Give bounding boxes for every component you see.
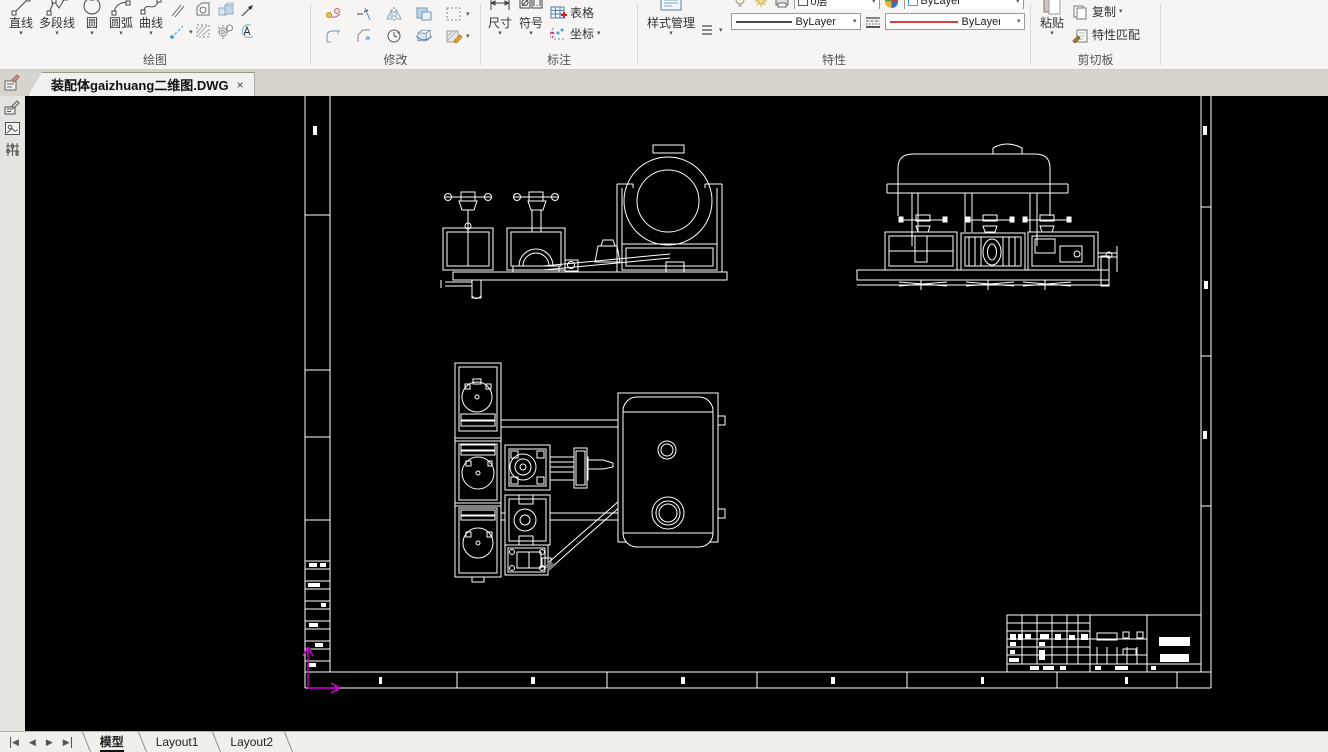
region-icon[interactable] xyxy=(195,2,213,18)
hatch-icon[interactable] xyxy=(195,23,213,39)
current-color-swatch xyxy=(908,0,918,6)
chevron-down-icon[interactable]: ▾ xyxy=(19,30,23,37)
annotate-group-label: 标注 xyxy=(481,51,637,68)
coordinate-button[interactable]: 坐标 ▾ xyxy=(549,25,601,42)
spline-tool-button[interactable]: 曲线 ▾ xyxy=(136,0,166,52)
ribbon-group-properties: 样式管理 ▾ ▾ xyxy=(638,0,1030,70)
polyline-tool-label: 多段线 xyxy=(39,16,75,30)
symbol-button[interactable]: 符号 ▾ xyxy=(515,0,547,52)
tab-layout2[interactable]: Layout2 xyxy=(214,732,289,752)
arc-tool-button[interactable]: 圆弧 ▾ xyxy=(106,0,136,52)
layout-tab-bar: ◀ ◀ ▶ ▶ 模型 Layout1 Layout2 xyxy=(0,731,1328,752)
frame-zone-ticks xyxy=(308,126,1208,684)
chevron-down-icon[interactable]: ▾ xyxy=(466,11,470,18)
ribbon-group-draw: 直线 ▾ 多段线 ▾ 圆 xyxy=(0,0,310,70)
layer-color-swatch xyxy=(798,0,808,6)
first-tab-button[interactable]: ◀ xyxy=(10,737,19,748)
parallel-lines-icon[interactable] xyxy=(168,2,186,18)
chevron-down-icon[interactable]: ▾ xyxy=(669,30,673,37)
mirror-icon[interactable] xyxy=(385,6,403,22)
draw-group-label: 绘图 xyxy=(0,51,310,68)
text-style-icon[interactable] xyxy=(239,23,257,39)
trim-icon[interactable] xyxy=(355,6,373,22)
document-tab[interactable]: 装配体gaizhuang二维图.DWG × xyxy=(28,72,255,96)
polyline-icon xyxy=(46,0,68,16)
offset-icon[interactable] xyxy=(325,6,343,22)
layout-tabs: 模型 Layout1 Layout2 xyxy=(84,732,289,752)
dimension-button[interactable]: 尺寸 ▾ xyxy=(485,0,515,52)
line-icon xyxy=(10,0,32,16)
rotate-icon[interactable] xyxy=(385,28,403,44)
layout1-tab-label: Layout1 xyxy=(156,735,199,749)
leader-arrow-icon[interactable] xyxy=(239,2,257,18)
layer-on-bulb-icon[interactable] xyxy=(731,0,749,9)
ucs-axis-icon xyxy=(303,647,340,693)
sheet-border-frame xyxy=(305,96,1211,688)
coordinate-label: 坐标 xyxy=(570,25,594,42)
side-tool-strip xyxy=(0,96,25,731)
ribbon-toolbar: 直线 ▾ 多段线 ▾ 圆 xyxy=(0,0,1328,70)
construction-line-icon[interactable] xyxy=(168,24,186,40)
linetype-dropdown[interactable]: ByLayer ▾ xyxy=(885,13,1025,30)
chevron-down-icon[interactable]: ▾ xyxy=(55,30,59,37)
chamfer-icon[interactable] xyxy=(355,28,373,44)
group-separator xyxy=(1160,4,1161,65)
line-tool-label: 直线 xyxy=(9,16,33,30)
union-icon[interactable] xyxy=(415,6,433,22)
cad-drawing xyxy=(25,96,1328,731)
copy-button[interactable]: 复制 ▾ xyxy=(1071,3,1140,20)
clipboard-group-label: 剪切板 xyxy=(1031,51,1160,68)
prev-tab-button[interactable]: ◀ xyxy=(29,737,36,748)
paste-label: 粘贴 xyxy=(1040,16,1064,30)
chevron-down-icon[interactable]: ▾ xyxy=(719,27,723,34)
model-tab-label: 模型 xyxy=(100,733,124,752)
front-view-drawing xyxy=(441,145,727,299)
style-manager-label: 样式管理 xyxy=(647,16,695,30)
current-color-value: ByLayer xyxy=(921,0,961,7)
ribbon-group-clipboard: 粘贴 ▾ 复制 ▾ 特性匹配 xyxy=(1031,0,1160,70)
view-orbit-icon[interactable] xyxy=(415,28,433,44)
circle-icon xyxy=(81,0,103,16)
linetype-value: ByLayer xyxy=(962,16,1000,28)
close-icon[interactable]: × xyxy=(237,78,244,92)
chevron-down-icon[interactable]: ▾ xyxy=(498,30,502,37)
chevron-down-icon[interactable]: ▾ xyxy=(90,30,94,37)
paste-icon xyxy=(1041,0,1063,16)
chevron-down-icon[interactable]: ▾ xyxy=(149,30,153,37)
arc-icon xyxy=(110,0,132,16)
image-tool-icon[interactable] xyxy=(4,120,21,137)
chevron-down-icon[interactable]: ▾ xyxy=(597,30,601,37)
table-label: 表格 xyxy=(570,4,594,21)
side-view-drawing xyxy=(857,144,1117,290)
line-tool-button[interactable]: 直线 ▾ xyxy=(6,0,36,52)
side-view-handwheels xyxy=(899,215,1071,232)
properties-group-label: 特性 xyxy=(638,51,1030,68)
document-tab-bar: 装配体gaizhuang二维图.DWG × xyxy=(0,70,1328,96)
table-icon xyxy=(549,5,567,21)
match-properties-button[interactable]: 特性匹配 xyxy=(1071,26,1140,43)
chevron-down-icon[interactable]: ▾ xyxy=(189,29,193,36)
chevron-down-icon[interactable]: ▾ xyxy=(1050,30,1054,37)
layer-plot-printer-icon[interactable] xyxy=(773,0,791,9)
fillet-icon[interactable] xyxy=(325,28,343,44)
paste-button[interactable]: 粘贴 ▾ xyxy=(1037,0,1067,52)
document-switch-icon[interactable] xyxy=(3,74,21,92)
ribbon-group-modify: ▾ ▾ 修改 xyxy=(311,0,480,70)
gear-icon[interactable] xyxy=(217,23,235,39)
arc-tool-label: 圆弧 xyxy=(109,16,133,30)
filter-tool-icon[interactable] xyxy=(4,141,21,158)
layout2-tab-label: Layout2 xyxy=(230,735,273,749)
style-manager-button[interactable]: 样式管理 ▾ xyxy=(644,0,698,52)
lineweight-dropdown[interactable]: ByLayer ▾ xyxy=(731,13,861,30)
rect-array-icon[interactable] xyxy=(445,6,463,22)
ribbon-group-annotate: 尺寸 ▾ 符号 ▾ 表格 xyxy=(481,0,637,70)
tab-navigation: ◀ ◀ ▶ ▶ xyxy=(0,732,84,752)
chevron-down-icon[interactable]: ▾ xyxy=(1016,0,1020,5)
hatch-edit-icon[interactable] xyxy=(445,28,463,44)
table-button[interactable]: 表格 xyxy=(549,4,601,21)
next-tab-button[interactable]: ▶ xyxy=(46,737,53,748)
polyline-tool-button[interactable]: 多段线 ▾ xyxy=(36,0,78,52)
tab-layout1[interactable]: Layout1 xyxy=(140,732,215,752)
annotate-tool-icon[interactable] xyxy=(4,99,21,116)
match-properties-icon xyxy=(1071,27,1089,43)
model-space-canvas[interactable] xyxy=(25,96,1328,731)
list-options-icon[interactable] xyxy=(698,22,716,38)
plan-view-drawing xyxy=(455,363,725,582)
copy-label: 复制 xyxy=(1092,3,1116,20)
chevron-down-icon[interactable]: ▾ xyxy=(466,33,470,40)
document-tab-title: 装配体gaizhuang二维图.DWG xyxy=(51,75,229,94)
coordinate-icon xyxy=(549,26,567,42)
copy-icon xyxy=(1071,4,1089,20)
chevron-down-icon[interactable]: ▾ xyxy=(1017,18,1021,25)
application-window: 直线 ▾ 多段线 ▾ 圆 xyxy=(0,0,1328,752)
modify-group-label: 修改 xyxy=(311,51,480,68)
tab-model[interactable]: 模型 xyxy=(84,732,140,752)
dimension-label: 尺寸 xyxy=(488,16,512,30)
color-wheel-icon[interactable] xyxy=(883,0,901,9)
curve-icon xyxy=(140,0,162,16)
last-tab-button[interactable]: ▶ xyxy=(63,737,72,748)
chevron-down-icon[interactable]: ▾ xyxy=(119,30,123,37)
dimension-icon xyxy=(488,0,512,16)
style-manager-icon xyxy=(658,0,684,16)
solid-3d-icon[interactable] xyxy=(217,2,235,18)
chevron-down-icon[interactable]: ▾ xyxy=(853,18,857,25)
curve-tool-label: 曲线 xyxy=(139,16,163,30)
layer-freeze-sun-icon[interactable] xyxy=(752,0,770,9)
chevron-down-icon[interactable]: ▾ xyxy=(529,30,533,37)
chevron-down-icon[interactable]: ▾ xyxy=(1119,8,1123,15)
circle-tool-button[interactable]: 圆 ▾ xyxy=(78,0,106,52)
current-layer-value: 0层 xyxy=(811,0,828,9)
symbol-label: 符号 xyxy=(519,16,543,30)
color-select-dropdown[interactable]: ByLayer ▾ xyxy=(904,0,1024,9)
linetype-sample xyxy=(889,19,959,25)
lineweight-value: ByLayer xyxy=(796,16,836,28)
layer-select-dropdown[interactable]: 0层 ▾ xyxy=(794,0,880,9)
linetype-manager-icon[interactable] xyxy=(864,14,882,30)
match-properties-label: 特性匹配 xyxy=(1092,26,1140,43)
lineweight-sample xyxy=(735,19,793,25)
circle-tool-label: 圆 xyxy=(86,16,98,30)
symbol-icon xyxy=(518,0,544,16)
chevron-down-icon[interactable]: ▾ xyxy=(872,0,876,5)
